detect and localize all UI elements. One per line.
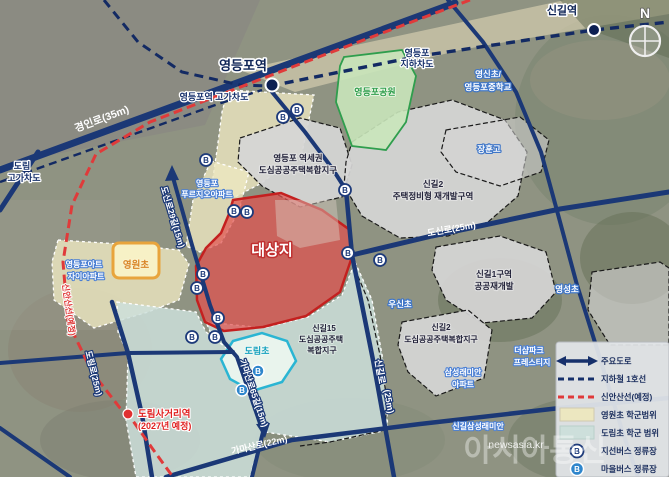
yeongdeungpo-station-label: 영등포역 — [219, 58, 267, 73]
svg-text:신길삼성래미안: 신길삼성래미안 — [452, 421, 504, 431]
janghoon-label: 장훈고 — [477, 144, 501, 154]
svg-text:B: B — [342, 186, 348, 195]
dorim-station-label: 도림사거리역 — [138, 408, 190, 420]
singil-station-marker — [588, 24, 600, 36]
dorim-overpass-label-1: 도림 — [14, 160, 31, 171]
svg-text:B: B — [200, 270, 206, 279]
svg-text:영등포아트: 영등포아트 — [66, 259, 103, 269]
svg-text:B: B — [239, 386, 245, 395]
svg-text:자이아파트: 자이아파트 — [68, 271, 105, 281]
yeongshin-label-2: 영등포중학교 — [465, 82, 512, 92]
legend-label-yeongwon: 영원초 학군범위 — [601, 410, 657, 420]
svg-text:도심공공주택복합지구: 도심공공주택복합지구 — [404, 334, 478, 344]
svg-text:프레스티지: 프레스티지 — [514, 357, 551, 367]
target-site-label: 대상지 — [251, 242, 292, 259]
svg-text:도심공공주택복합지구: 도심공공주택복합지구 — [259, 165, 337, 175]
dorim-station-note: (2027년 예정) — [138, 420, 191, 431]
legend-label-sinansan: 신안산선(예정) — [601, 392, 653, 402]
singil-station-label: 신길역 — [547, 3, 577, 17]
legend-label-dorim: 도림초 학군 범위 — [601, 428, 659, 438]
yeongsung-label: 영성초 — [555, 284, 579, 294]
svg-text:신길15: 신길15 — [312, 323, 336, 333]
svg-text:B: B — [215, 314, 221, 323]
ydp-overpass-label: 영등포역 고가차도 — [180, 91, 249, 102]
legend-label-subway: 지하철 1호선 — [601, 374, 646, 384]
woosin-label: 우신초 — [388, 299, 412, 309]
svg-text:B: B — [255, 367, 261, 376]
svg-text:신길2: 신길2 — [423, 179, 444, 189]
redevelopment-map: B B B B B B B B B B B B B B B 경인로(35m) 영… — [0, 0, 669, 477]
svg-text:B: B — [345, 249, 351, 258]
dorim-overpass-label-2: 고가차도 — [7, 172, 41, 183]
svg-text:영등포: 영등포 — [196, 178, 219, 188]
dorim-school-label: 도림초 — [245, 345, 271, 356]
ydp-underpass-label-2: 지하차도 — [400, 58, 434, 69]
watermark-url: newsasia.kr — [488, 439, 544, 451]
park-label: 영등포공원 — [354, 86, 395, 97]
svg-text:B: B — [203, 156, 209, 165]
svg-text:B: B — [231, 207, 237, 216]
compass-n-label: N — [640, 5, 650, 21]
legend-yeongwon-swatch — [560, 408, 594, 421]
svg-text:신길1구역: 신길1구역 — [476, 269, 512, 279]
svg-text:공공재개발: 공공재개발 — [474, 281, 513, 291]
svg-text:B: B — [280, 113, 286, 122]
svg-text:더샵파크: 더샵파크 — [514, 345, 544, 355]
svg-text:아파트: 아파트 — [452, 379, 475, 389]
svg-text:복합지구: 복합지구 — [307, 345, 337, 355]
svg-text:신길2: 신길2 — [431, 322, 451, 332]
yeongwon-school-label: 영원초 — [123, 259, 149, 271]
svg-text:영등포 역세권: 영등포 역세권 — [273, 153, 322, 163]
svg-text:B: B — [189, 333, 195, 342]
ydp-underpass-label-1: 영등포 — [405, 47, 431, 58]
dorim-station-marker — [123, 409, 133, 419]
watermark: 아시아통신 newsasia.kr — [464, 433, 607, 468]
svg-text:푸르지오아파트: 푸르지오아파트 — [181, 189, 233, 199]
svg-text:삼성래미안: 삼성래미안 — [445, 367, 482, 377]
legend-label-village-bus: 마을버스 정류장 — [601, 464, 657, 474]
svg-text:B: B — [377, 256, 383, 265]
svg-text:B: B — [244, 208, 250, 217]
svg-text:B: B — [212, 333, 218, 342]
yeongdeungpo-station-marker — [266, 79, 279, 92]
legend-label-branch-bus: 지선버스 정류장 — [601, 446, 657, 456]
legend-label-main-road: 주요도로 — [601, 356, 632, 366]
svg-text:도심공공주택: 도심공공주택 — [299, 334, 343, 344]
svg-text:주택정비형 재개발구역: 주택정비형 재개발구역 — [393, 191, 474, 201]
yeongshin-label-1: 영신초/ — [475, 69, 501, 79]
svg-text:B: B — [194, 284, 200, 293]
svg-text:B: B — [294, 106, 300, 115]
map-canvas: B B B B B B B B B B B B B B B 경인로(35m) 영… — [0, 0, 669, 477]
